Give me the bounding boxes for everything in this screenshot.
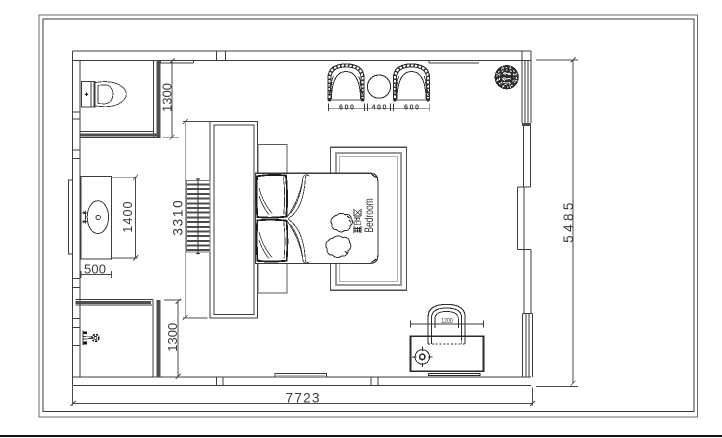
- svg-text:1300: 1300: [165, 323, 180, 352]
- svg-text:500: 500: [84, 261, 106, 276]
- svg-text:1200: 1200: [441, 316, 452, 325]
- svg-text:600: 600: [339, 103, 354, 112]
- svg-text:1300: 1300: [160, 83, 175, 112]
- svg-text:400: 400: [372, 103, 387, 112]
- svg-text:Bedroom: Bedroom: [362, 198, 376, 232]
- svg-text:600: 600: [404, 103, 419, 112]
- svg-text:5485: 5485: [561, 203, 576, 243]
- svg-text:7723: 7723: [286, 390, 320, 405]
- svg-text:1400: 1400: [121, 201, 135, 232]
- svg-text:3310: 3310: [171, 200, 186, 235]
